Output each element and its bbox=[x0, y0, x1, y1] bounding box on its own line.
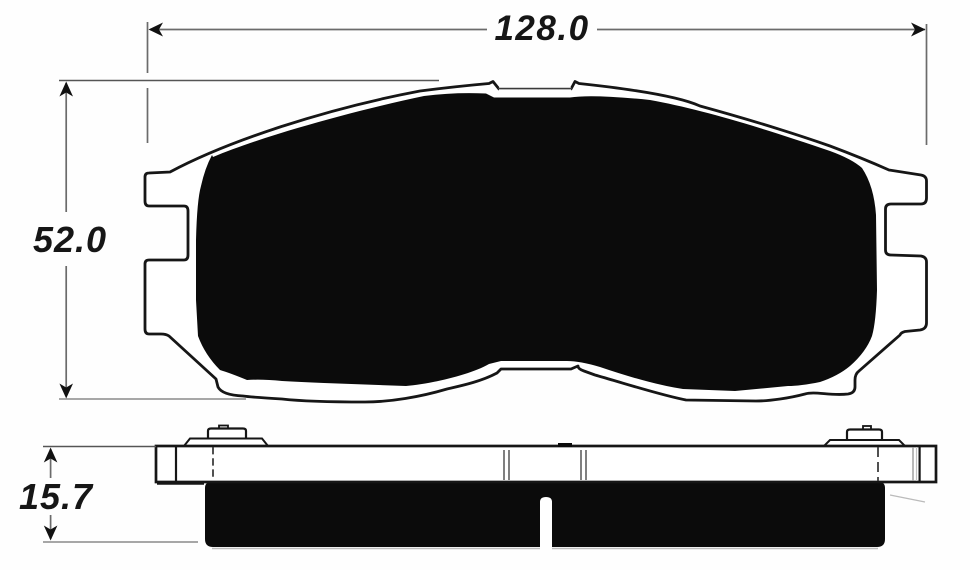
svg-text:15.7: 15.7 bbox=[19, 476, 94, 517]
svg-text:52.0: 52.0 bbox=[33, 219, 107, 260]
svg-text:128.0: 128.0 bbox=[494, 9, 589, 48]
